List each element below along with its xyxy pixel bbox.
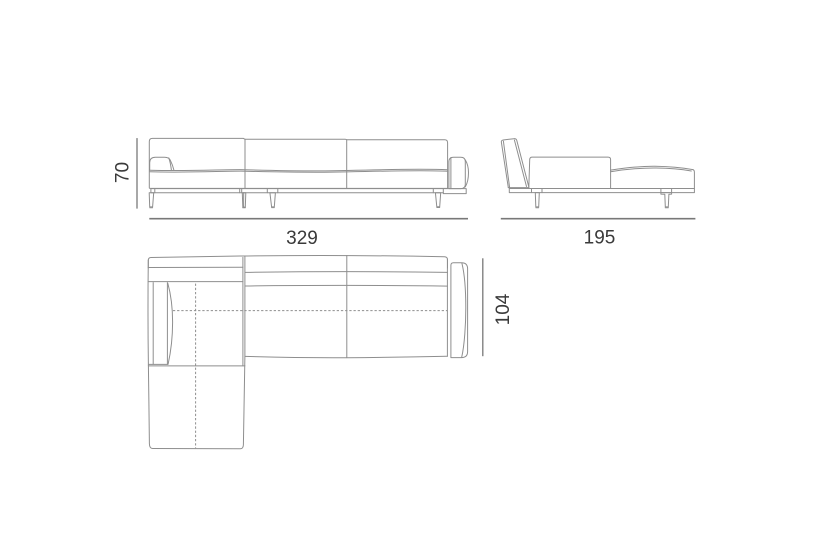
- svg-text:329: 329: [286, 228, 318, 249]
- svg-text:70: 70: [112, 162, 133, 183]
- svg-text:104: 104: [493, 293, 514, 325]
- svg-text:195: 195: [584, 228, 616, 249]
